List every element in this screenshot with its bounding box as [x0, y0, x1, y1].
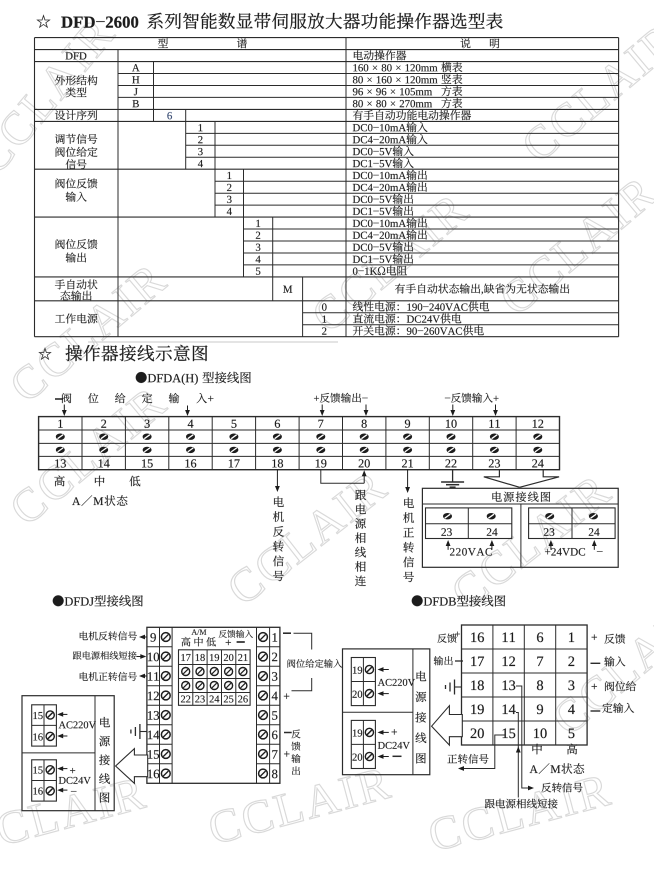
svg-text:CCLAIR: CCLAIR: [512, 13, 654, 173]
svg-text:CCLAIR: CCLAIR: [203, 757, 397, 856]
svg-text:CCLAIR: CCLAIR: [0, 7, 126, 184]
svg-text:CCLAIR: CCLAIR: [490, 166, 654, 326]
svg-text:CCLAIR: CCLAIR: [542, 586, 654, 746]
svg-text:CCLAIR: CCLAIR: [218, 460, 398, 616]
svg-text:CCLAIR: CCLAIR: [423, 764, 617, 863]
svg-text:CCLAIR: CCLAIR: [0, 767, 152, 866]
